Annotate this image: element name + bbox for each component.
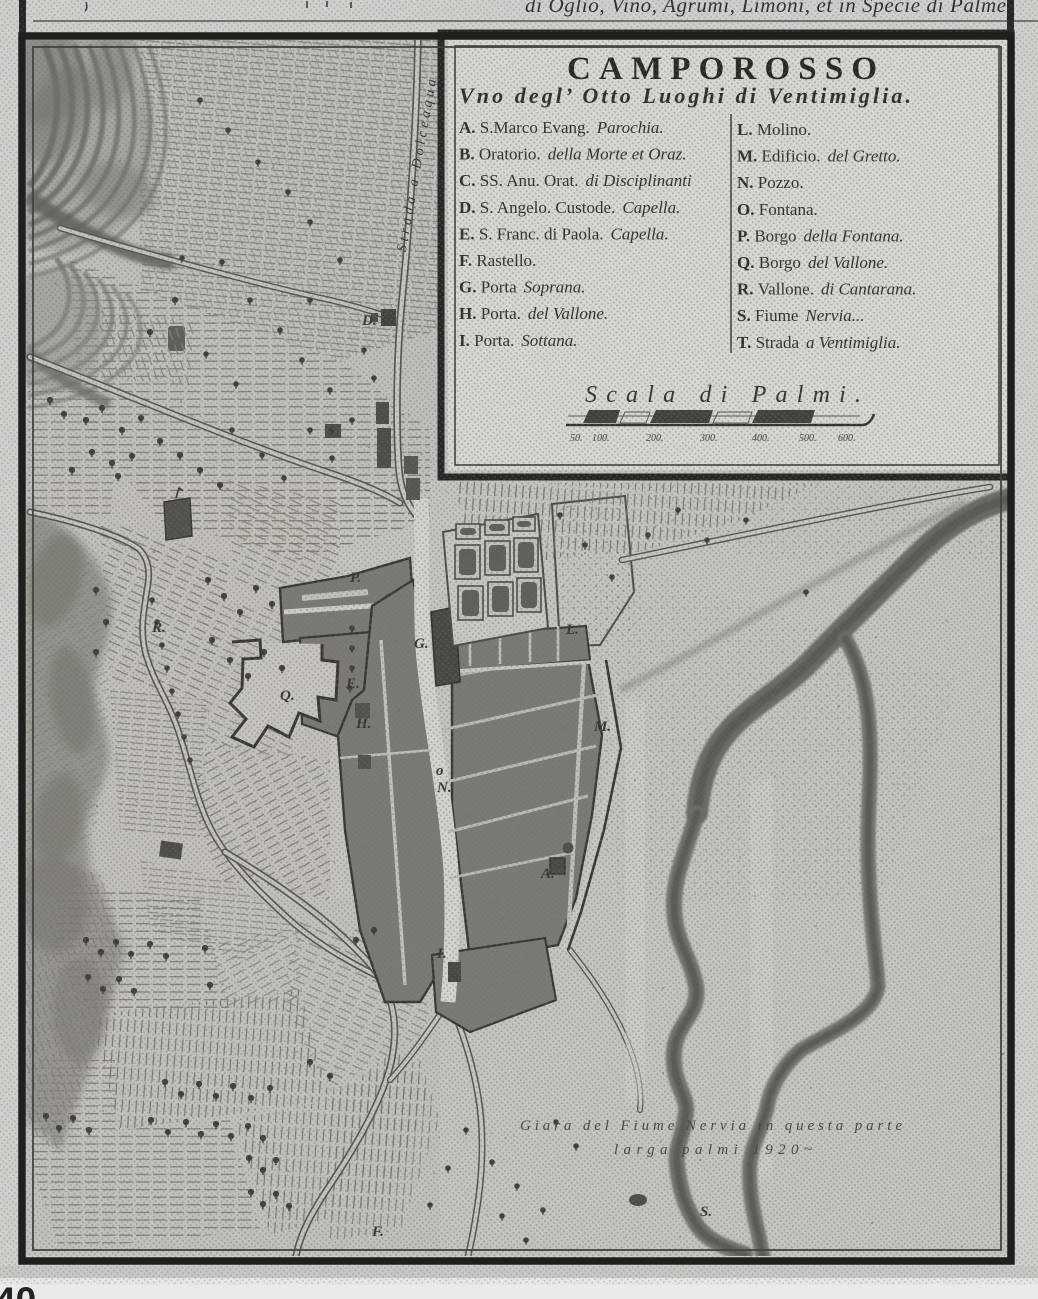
svg-text:40: 40 bbox=[0, 1280, 36, 1299]
